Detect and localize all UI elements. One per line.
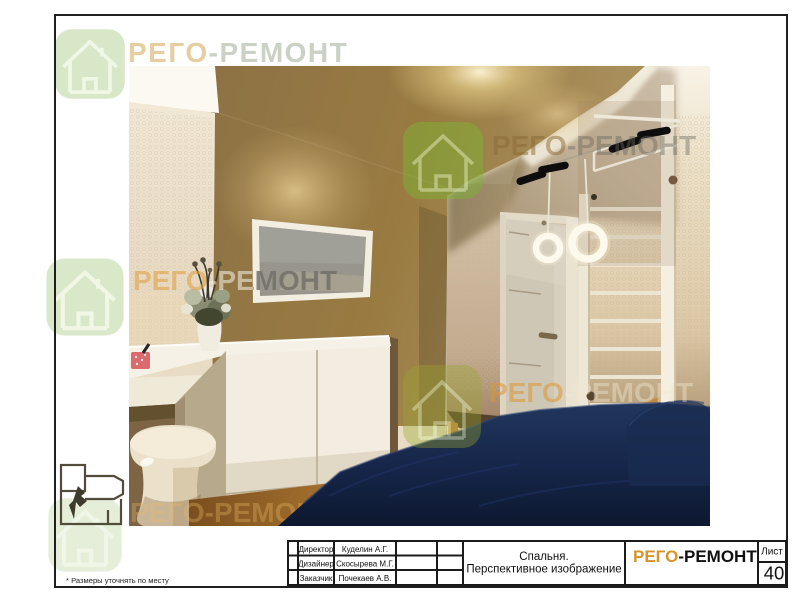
- svg-text:Директор: Директор: [299, 545, 334, 554]
- svg-text:Куделин А.Г.: Куделин А.Г.: [342, 545, 388, 554]
- svg-text:Спальня.: Спальня.: [519, 551, 568, 563]
- svg-text:Лист: Лист: [761, 547, 783, 558]
- svg-text:-РЕМОНТ: -РЕМОНТ: [567, 130, 696, 161]
- svg-text:РЕГО: РЕГО: [492, 130, 567, 161]
- svg-text:РЕГО: РЕГО: [133, 265, 208, 296]
- svg-text:РЕГО-РЕМОНТ: РЕГО-РЕМОНТ: [633, 547, 757, 566]
- svg-text:Заказчик: Заказчик: [300, 574, 333, 583]
- svg-text:Перспективное изображение: Перспективное изображение: [466, 564, 621, 576]
- svg-text:Дизайнер: Дизайнер: [298, 560, 334, 569]
- svg-text:40: 40: [764, 563, 785, 584]
- svg-text:РЕГО: РЕГО: [489, 377, 564, 408]
- svg-text:-РЕМОНТ: -РЕМОНТ: [564, 377, 693, 408]
- svg-text:Почекаев А.В.: Почекаев А.В.: [339, 574, 392, 583]
- svg-text:Скосырева М.Г.: Скосырева М.Г.: [336, 560, 394, 569]
